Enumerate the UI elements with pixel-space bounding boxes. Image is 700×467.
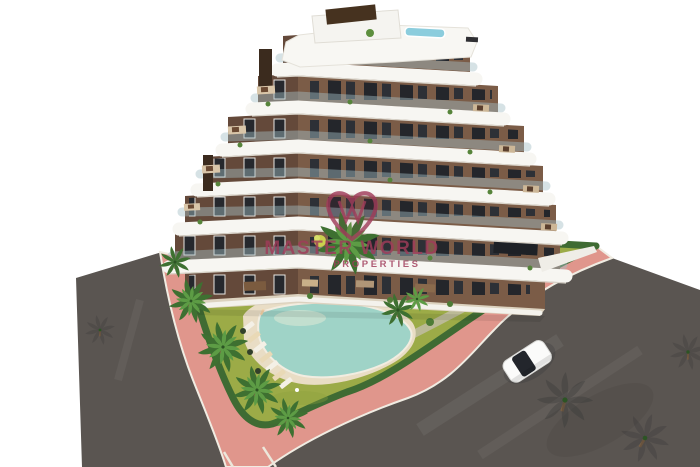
scene-canvas: MASTER WORLD PROPERTIES [0,0,700,467]
person [295,388,299,392]
aerial-render: MASTER WORLD PROPERTIES [0,0,700,467]
rooftop-pool [405,27,445,38]
roof-vent [466,37,478,43]
watermark-brand-text: MASTER WORLD [264,238,439,259]
chimney [259,49,272,87]
watermark-tagline-text: PROPERTIES [333,259,420,270]
roof-plant [366,29,374,37]
lawn-patch [272,391,328,405]
